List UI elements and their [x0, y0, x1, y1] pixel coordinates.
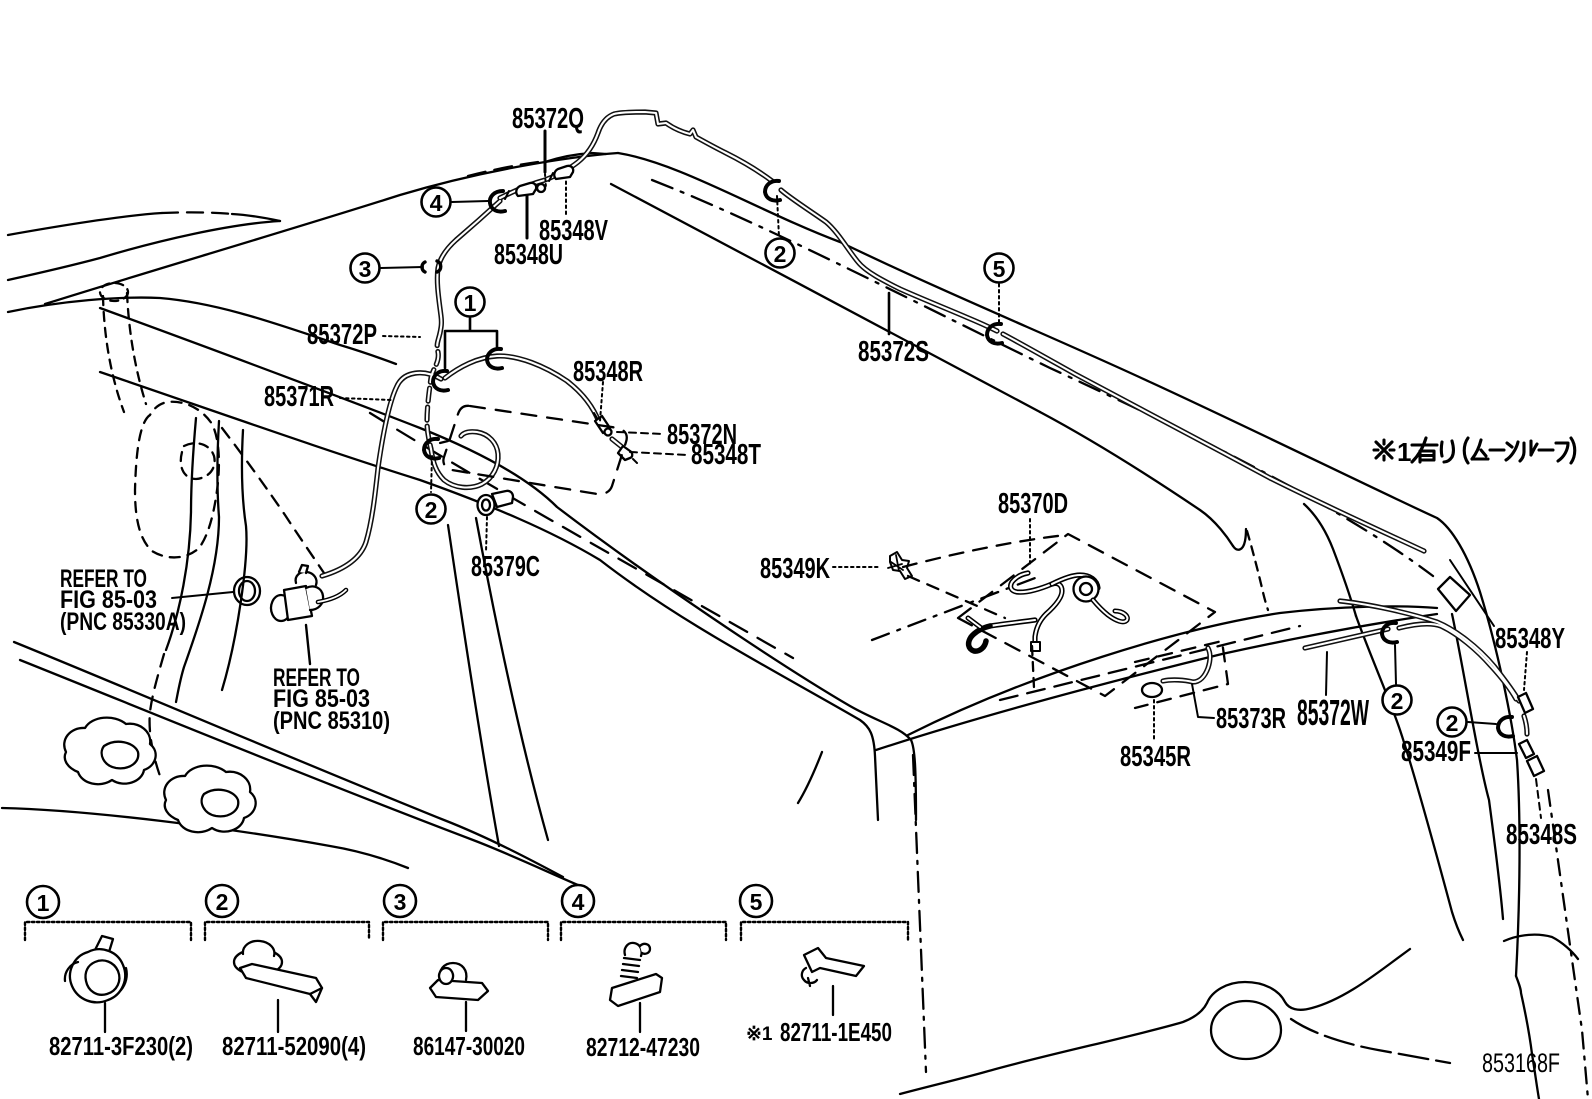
svg-text:85349F: 85349F	[1401, 736, 1471, 768]
svg-text:86147-30020: 86147-30020	[413, 1031, 525, 1061]
svg-text:85349K: 85349K	[760, 553, 830, 585]
svg-text:※1: ※1	[746, 1024, 773, 1045]
svg-text:5: 5	[750, 889, 763, 915]
svg-text:85345R: 85345R	[1120, 741, 1191, 773]
svg-text:85348U: 85348U	[494, 239, 563, 271]
svg-text:5: 5	[993, 256, 1006, 282]
svg-text:1: 1	[1397, 437, 1411, 467]
svg-text:(PNC 85330A): (PNC 85330A)	[60, 608, 186, 636]
svg-text:2: 2	[425, 497, 438, 523]
svg-text:85348S: 85348S	[1506, 819, 1577, 851]
svg-text:(PNC 85310): (PNC 85310)	[273, 707, 390, 735]
svg-text:85379C: 85379C	[471, 551, 540, 583]
svg-text:3: 3	[359, 256, 372, 282]
svg-text:2: 2	[216, 889, 229, 915]
svg-text:2: 2	[1446, 710, 1459, 736]
svg-text:853168F: 853168F	[1482, 1048, 1560, 1078]
svg-text:85372Q: 85372Q	[512, 103, 584, 135]
svg-text:85372S: 85372S	[858, 336, 929, 368]
svg-text:2: 2	[1391, 688, 1404, 714]
svg-text:82711-3F230(2): 82711-3F230(2)	[49, 1031, 193, 1061]
svg-text:1: 1	[37, 890, 50, 916]
svg-text:82712-47230: 82712-47230	[586, 1032, 700, 1062]
svg-text:82711-1E450: 82711-1E450	[780, 1017, 892, 1047]
svg-text:85348Y: 85348Y	[1495, 623, 1565, 655]
svg-text:2: 2	[774, 241, 787, 267]
svg-text:85348T: 85348T	[691, 439, 761, 471]
svg-text:85371R: 85371R	[264, 381, 334, 413]
svg-text:4: 4	[430, 190, 443, 216]
svg-text:85348R: 85348R	[573, 356, 643, 388]
svg-text:4: 4	[572, 889, 585, 915]
svg-text:85373R: 85373R	[1216, 703, 1286, 735]
svg-text:3: 3	[394, 889, 407, 915]
svg-text:85372W: 85372W	[1297, 692, 1369, 733]
svg-text:85372P: 85372P	[307, 319, 377, 351]
svg-text:1: 1	[464, 290, 477, 316]
svg-text:82711-52090(4): 82711-52090(4)	[222, 1031, 366, 1061]
svg-text:85370D: 85370D	[998, 488, 1068, 520]
